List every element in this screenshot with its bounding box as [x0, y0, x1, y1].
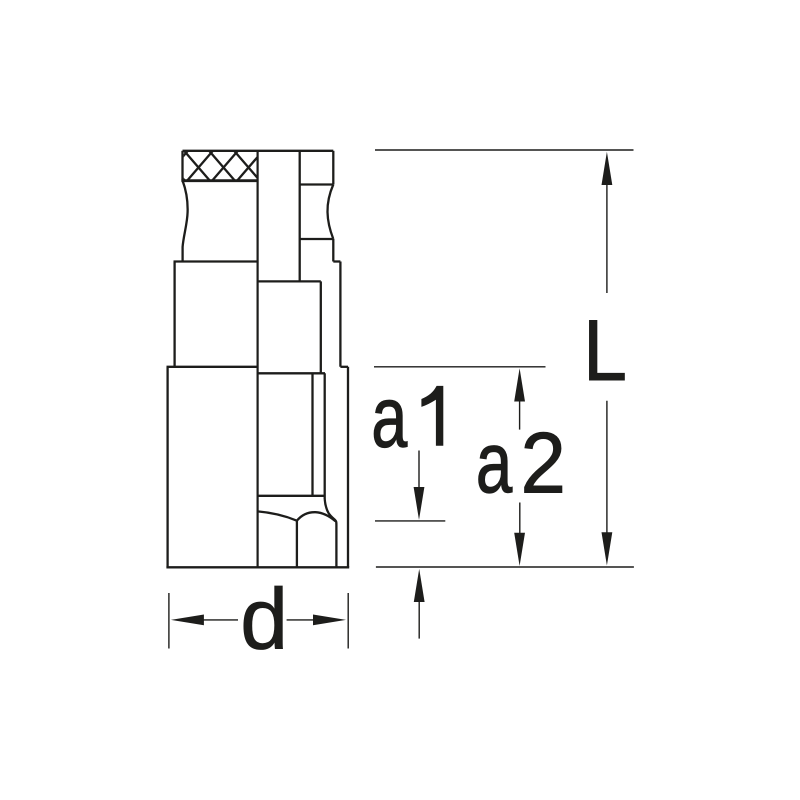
- svg-text:2: 2: [521, 415, 566, 511]
- svg-text:a: a: [476, 415, 513, 511]
- svg-text:d: d: [240, 571, 288, 667]
- svg-text:a: a: [371, 370, 407, 466]
- svg-text:L: L: [583, 302, 627, 399]
